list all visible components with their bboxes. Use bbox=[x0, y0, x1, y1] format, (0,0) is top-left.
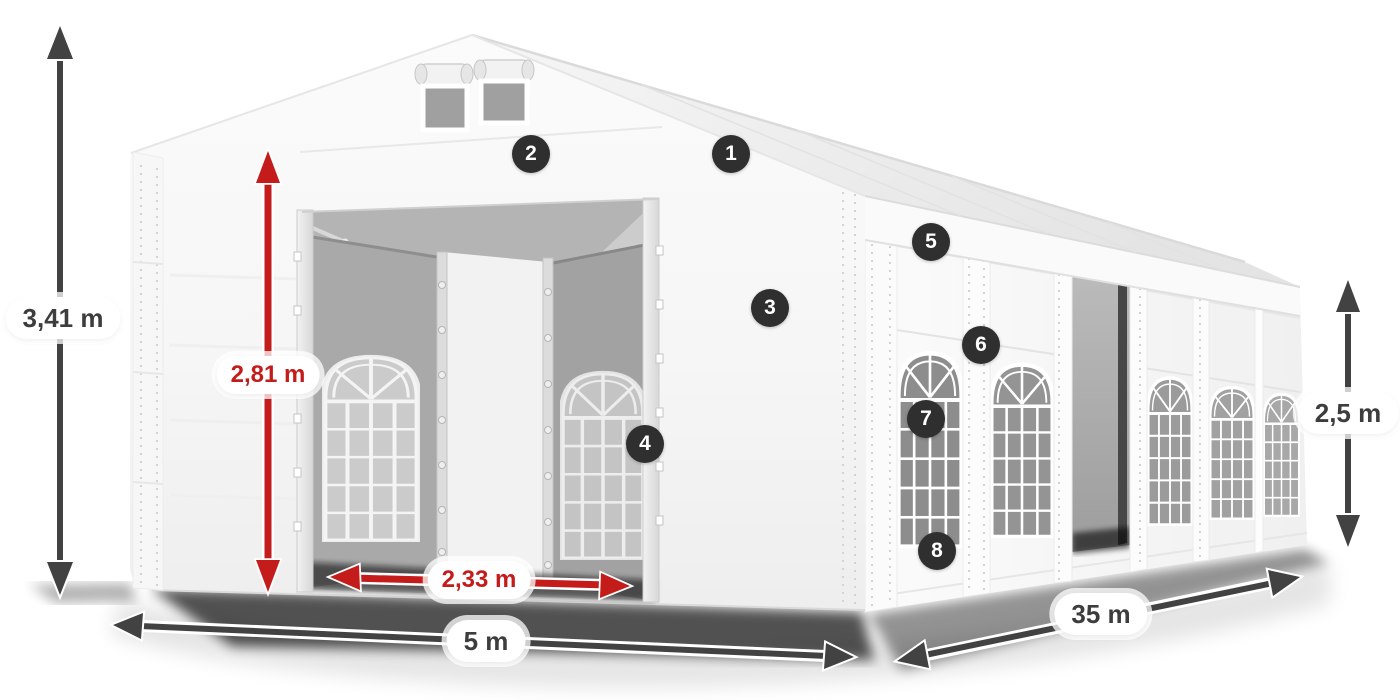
length-value: 35 m bbox=[1071, 599, 1130, 629]
front-door-right bbox=[543, 243, 655, 601]
dimension-label-width: 5 m bbox=[447, 620, 526, 662]
tent-illustration bbox=[0, 0, 1400, 700]
dimension-label-entrance-height: 2,81 m bbox=[217, 356, 320, 394]
callout-badge-8: 8 bbox=[918, 532, 956, 570]
vent-roller-right bbox=[474, 60, 534, 81]
vent-window-left bbox=[423, 86, 467, 130]
vent-roller-left bbox=[415, 64, 473, 85]
front-door-left bbox=[306, 236, 447, 588]
entrance-height-value: 2,81 m bbox=[231, 361, 306, 388]
callout-badge-3: 3 bbox=[751, 289, 789, 327]
side-window-1 bbox=[897, 353, 963, 546]
width-value: 5 m bbox=[464, 626, 509, 656]
side-height-value: 2,5 m bbox=[1315, 398, 1382, 428]
callout-badge-2: 2 bbox=[512, 135, 550, 173]
front-door-opening bbox=[294, 198, 663, 602]
side-door-opening bbox=[1072, 252, 1130, 554]
side-window-2 bbox=[990, 365, 1054, 537]
callout-badge-6: 6 bbox=[962, 326, 1000, 364]
dimension-label-total-height: 3,41 m bbox=[6, 297, 121, 339]
total-height-value: 3,41 m bbox=[23, 303, 104, 333]
callout-badge-7: 7 bbox=[907, 400, 945, 438]
vent-window-right bbox=[481, 81, 527, 123]
dimension-label-side-height: 2,5 m bbox=[1298, 392, 1399, 434]
side-window-4 bbox=[1209, 388, 1255, 519]
side-window-5 bbox=[1263, 394, 1300, 516]
callout-badge-5: 5 bbox=[912, 223, 950, 261]
tent-dimensions-diagram: 3,41 m 2,81 m 2,33 m 5 m 35 m 2,5 m 1 2 … bbox=[0, 0, 1400, 700]
dimension-label-entrance-width: 2,33 m bbox=[428, 561, 531, 599]
side-window-3 bbox=[1147, 378, 1193, 525]
dimension-label-length: 35 m bbox=[1054, 593, 1147, 635]
entrance-width-value: 2,33 m bbox=[442, 566, 517, 593]
callout-badge-4: 4 bbox=[626, 425, 664, 463]
callout-badge-1: 1 bbox=[712, 135, 750, 173]
